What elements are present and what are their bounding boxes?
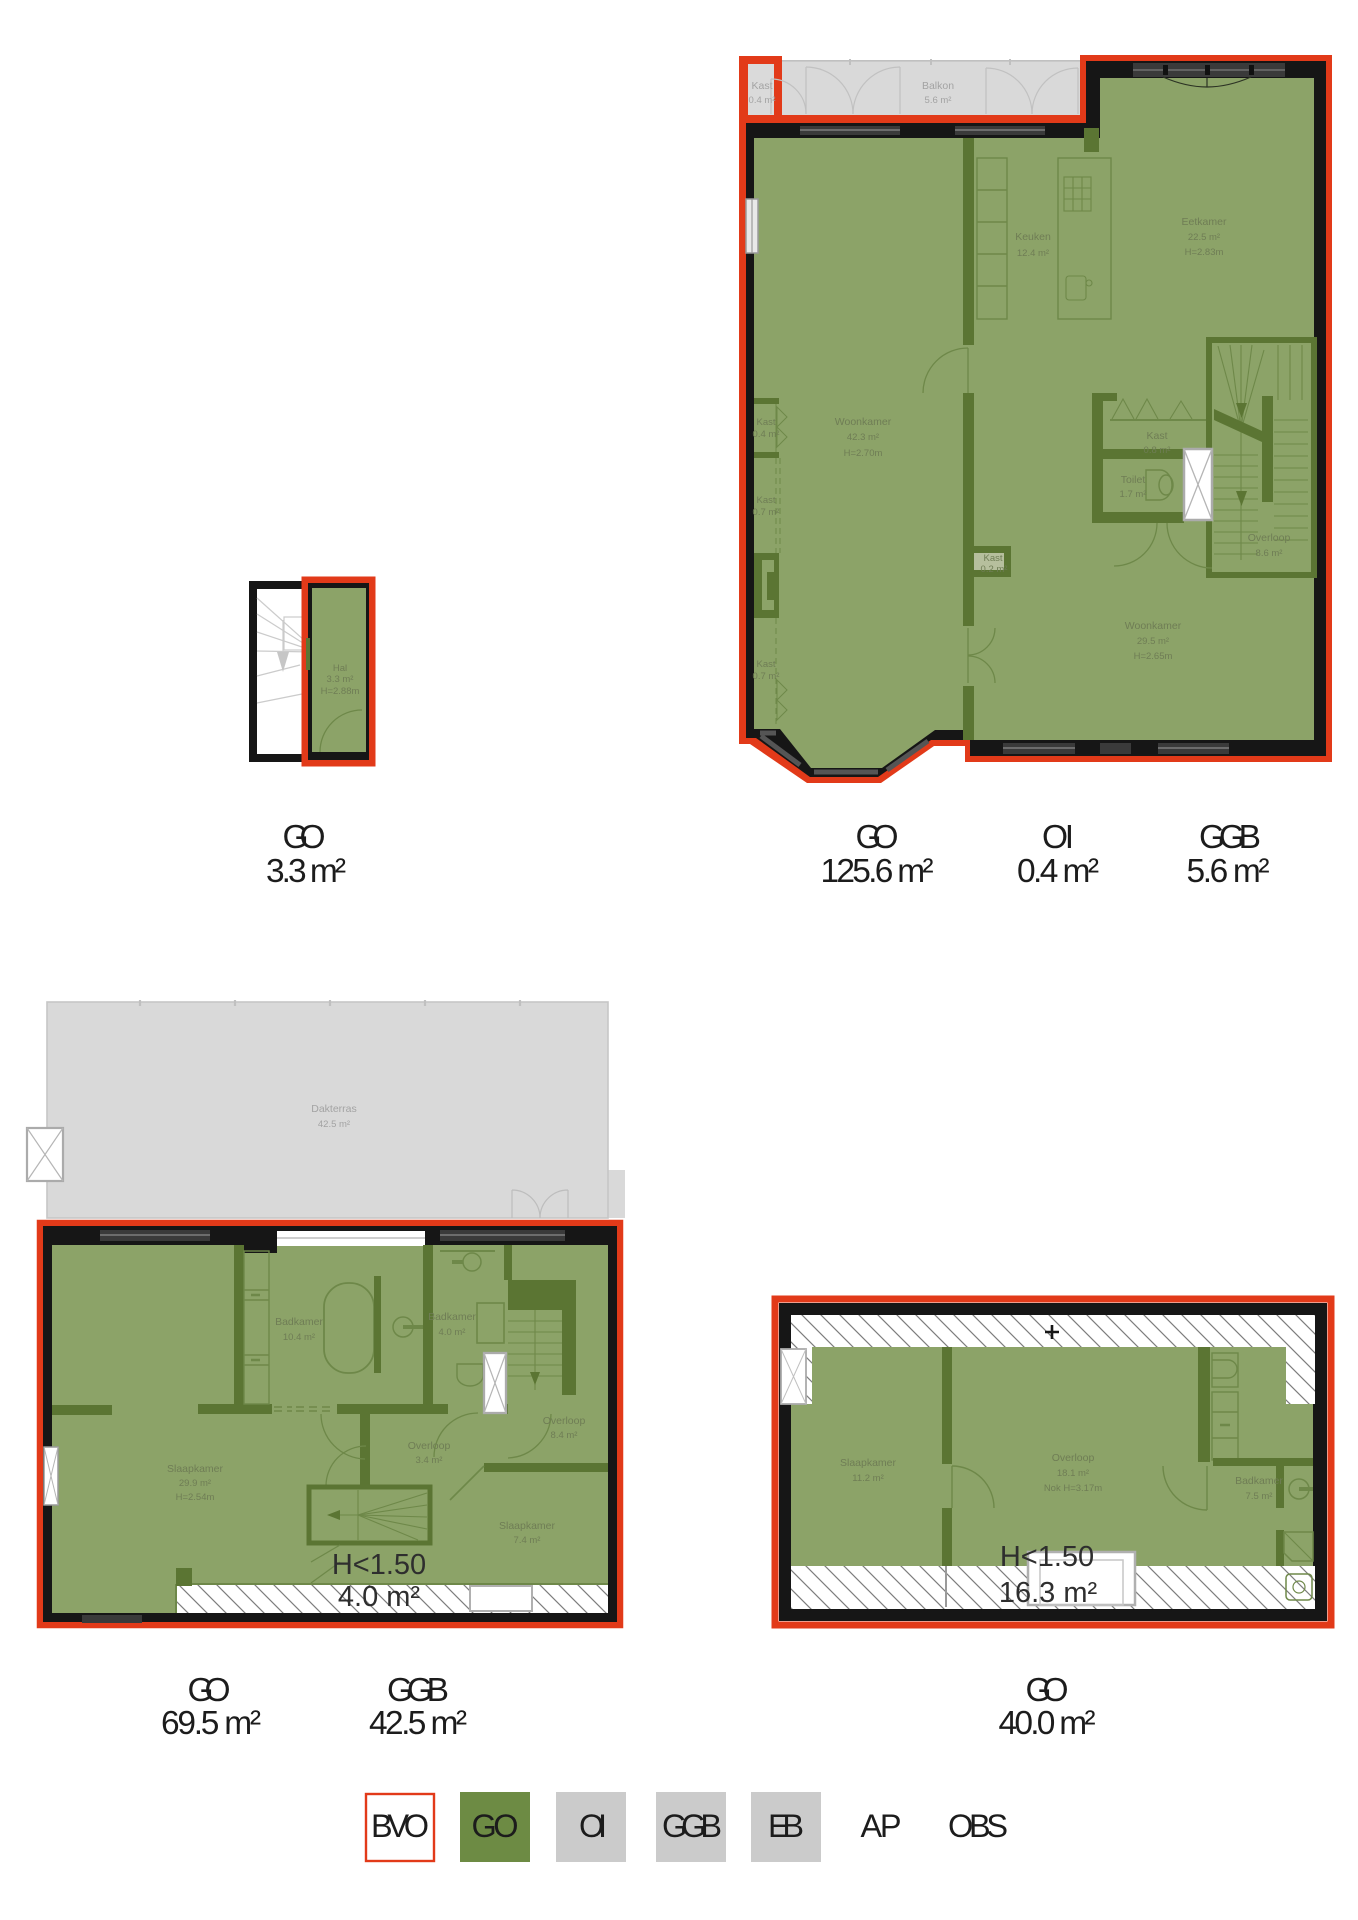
- svg-text:Woonkamer: Woonkamer: [835, 416, 892, 428]
- svg-text:Kast: Kast: [1146, 430, 1167, 442]
- svg-text:8.6 m²: 8.6 m²: [1256, 548, 1283, 559]
- svg-text:10.4 m²: 10.4 m²: [283, 1332, 315, 1343]
- svg-text:BVO: BVO: [371, 1808, 429, 1844]
- svg-text:29.9 m²: 29.9 m²: [179, 1478, 211, 1489]
- svg-text:GO: GO: [188, 1672, 231, 1709]
- svg-text:Kast: Kast: [983, 553, 1002, 564]
- svg-text:H=2.88m: H=2.88m: [321, 686, 360, 697]
- svg-text:0.4 m²: 0.4 m²: [1017, 853, 1099, 890]
- svg-text:Toilet: Toilet: [1121, 474, 1146, 486]
- svg-text:3.4 m²: 3.4 m²: [416, 1455, 443, 1466]
- svg-text:Badkamer: Badkamer: [1235, 1475, 1283, 1487]
- svg-text:Slaapkamer: Slaapkamer: [499, 1520, 556, 1532]
- svg-text:0.8 m²: 0.8 m²: [1144, 445, 1171, 456]
- svg-text:7.4 m²: 7.4 m²: [514, 1535, 541, 1546]
- svg-text:Badkamer: Badkamer: [428, 1311, 476, 1323]
- svg-text:42.3 m²: 42.3 m²: [847, 432, 879, 443]
- svg-text:1.7 m²: 1.7 m²: [1120, 489, 1147, 500]
- svg-text:Badkamer: Badkamer: [275, 1316, 323, 1328]
- svg-text:Overloop: Overloop: [1052, 1452, 1095, 1464]
- svg-text:H=2.70m: H=2.70m: [844, 448, 883, 459]
- svg-text:3.3 m²: 3.3 m²: [327, 674, 354, 685]
- svg-text:Overloop: Overloop: [408, 1440, 451, 1452]
- svg-text:GGB: GGB: [1199, 819, 1261, 856]
- svg-text:0.7 m²: 0.7 m²: [753, 507, 780, 518]
- svg-text:18.1 m²: 18.1 m²: [1057, 1468, 1089, 1479]
- svg-text:Eetkamer: Eetkamer: [1182, 216, 1227, 228]
- svg-text:GO: GO: [1026, 1672, 1069, 1709]
- svg-text:EB: EB: [768, 1808, 804, 1844]
- svg-text:Overloop: Overloop: [1248, 532, 1291, 544]
- svg-text:125.6 m²: 125.6 m²: [821, 853, 934, 890]
- svg-text:3.3 m²: 3.3 m²: [266, 853, 346, 890]
- svg-text:Slaapkamer: Slaapkamer: [840, 1457, 897, 1469]
- svg-text:GGB: GGB: [387, 1672, 449, 1709]
- svg-text:H=2.83m: H=2.83m: [1185, 247, 1224, 258]
- svg-text:Kast: Kast: [751, 80, 772, 92]
- svg-text:0.7 m²: 0.7 m²: [753, 671, 780, 682]
- svg-text:GO: GO: [856, 819, 899, 856]
- svg-text:H<1.50: H<1.50: [332, 1549, 426, 1581]
- svg-text:Nok H=3.17m: Nok H=3.17m: [1044, 1483, 1102, 1494]
- svg-text:0.4 m²: 0.4 m²: [749, 95, 776, 106]
- svg-text:OI: OI: [579, 1808, 607, 1844]
- svg-text:0.4 m²: 0.4 m²: [753, 429, 780, 440]
- svg-text:Hal: Hal: [333, 663, 347, 674]
- svg-text:Balkon: Balkon: [922, 80, 954, 92]
- svg-text:8.4 m²: 8.4 m²: [551, 1430, 578, 1441]
- svg-text:12.4 m²: 12.4 m²: [1017, 248, 1049, 259]
- svg-text:GO: GO: [472, 1808, 519, 1844]
- svg-text:16.3 m²: 16.3 m²: [999, 1577, 1098, 1609]
- svg-text:GO: GO: [283, 819, 326, 856]
- svg-text:4.0 m²: 4.0 m²: [338, 1581, 421, 1613]
- svg-text:Kast: Kast: [756, 659, 775, 670]
- svg-text:7.5 m²: 7.5 m²: [1246, 1491, 1273, 1502]
- svg-text:GGB: GGB: [662, 1808, 722, 1844]
- svg-text:29.5 m²: 29.5 m²: [1137, 636, 1169, 647]
- svg-text:22.5 m²: 22.5 m²: [1188, 232, 1220, 243]
- svg-text:Overloop: Overloop: [543, 1415, 586, 1427]
- svg-text:40.0 m²: 40.0 m²: [999, 1705, 1096, 1742]
- svg-text:OBS: OBS: [948, 1808, 1008, 1844]
- svg-text:4.0 m²: 4.0 m²: [439, 1327, 466, 1338]
- svg-text:OI: OI: [1042, 819, 1074, 856]
- svg-text:Keuken: Keuken: [1015, 231, 1051, 243]
- svg-text:11.2 m²: 11.2 m²: [852, 1473, 884, 1484]
- svg-text:AP: AP: [861, 1808, 902, 1844]
- svg-text:69.5 m²: 69.5 m²: [161, 1705, 261, 1742]
- svg-text:Kast: Kast: [756, 417, 775, 428]
- svg-text:5.6 m²: 5.6 m²: [925, 95, 952, 106]
- svg-text:Slaapkamer: Slaapkamer: [167, 1463, 224, 1475]
- svg-text:Woonkamer: Woonkamer: [1125, 620, 1182, 632]
- svg-text:42.5 m²: 42.5 m²: [318, 1119, 350, 1130]
- svg-text:H=2.54m: H=2.54m: [176, 1492, 215, 1503]
- svg-text:42.5 m²: 42.5 m²: [369, 1705, 467, 1742]
- svg-text:Dakterras: Dakterras: [311, 1103, 357, 1115]
- svg-text:5.6 m²: 5.6 m²: [1187, 853, 1270, 890]
- svg-text:Kast: Kast: [756, 495, 775, 506]
- svg-text:0.2 m²: 0.2 m²: [981, 564, 1008, 575]
- svg-text:H<1.50: H<1.50: [1000, 1541, 1094, 1573]
- svg-text:H=2.65m: H=2.65m: [1134, 651, 1173, 662]
